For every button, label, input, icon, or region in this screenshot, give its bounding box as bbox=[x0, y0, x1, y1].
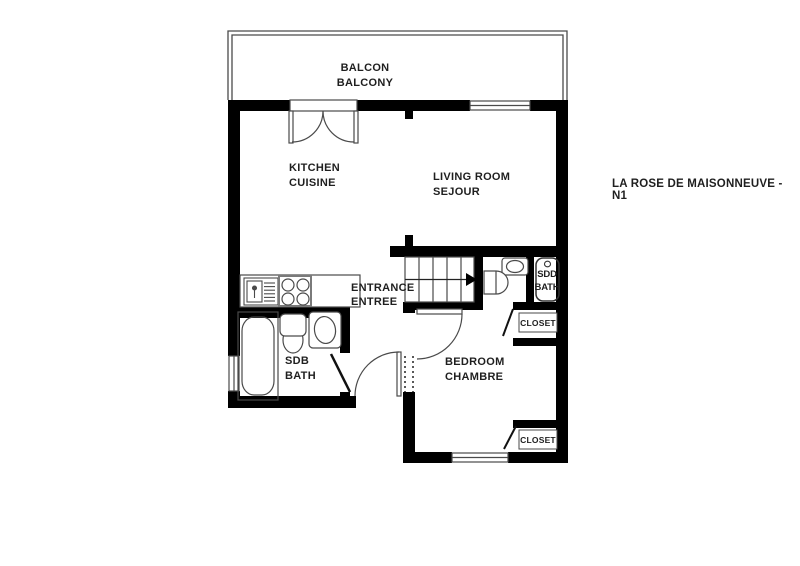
bathroom-door-icon bbox=[331, 354, 350, 392]
stairs-icon bbox=[405, 257, 477, 302]
room-label-kitchen: KITCHEN CUISINE bbox=[289, 161, 340, 191]
toilet-icon-ensuite bbox=[484, 271, 508, 294]
room-label-closet-top: CLOSET bbox=[519, 313, 557, 332]
room-label-bathroom: SDB BATH bbox=[285, 354, 316, 384]
room-label-bedroom: BEDROOM CHAMBRE bbox=[445, 355, 505, 385]
room-label-entrance: ENTRANCE ENTREE bbox=[351, 281, 415, 309]
bathtub-icon bbox=[238, 312, 278, 400]
washbasin-icon-ensuite bbox=[502, 258, 528, 275]
dashed-opening bbox=[405, 356, 413, 392]
cooktop-icon bbox=[279, 276, 311, 306]
closet-door-icon-bottom bbox=[504, 426, 516, 449]
bedroom-door-icon bbox=[417, 309, 462, 359]
room-label-balcony: BALCON BALCONY bbox=[321, 61, 409, 90]
closet-boxes bbox=[519, 313, 557, 449]
room-label-shower-room: SDD BATH bbox=[532, 269, 562, 294]
floor-plan: BALCON BALCONY KITCHEN CUISINE LIVING RO… bbox=[0, 0, 800, 566]
room-label-closet-bottom: CLOSET bbox=[519, 430, 557, 449]
toilet-icon-bathroom bbox=[280, 314, 306, 353]
plan-title: LA ROSE DE MAISONNEUVE - N1 bbox=[612, 178, 800, 202]
washbasin-icon-bathroom bbox=[309, 312, 341, 348]
room-label-living-room: LIVING ROOM SEJOUR bbox=[433, 170, 510, 200]
french-door-icon bbox=[289, 100, 358, 143]
window-icon-bedroom bbox=[452, 453, 508, 462]
entrance-door-icon bbox=[355, 352, 401, 396]
closet-door-icon-top bbox=[503, 309, 513, 336]
window-icon-top bbox=[470, 101, 530, 110]
